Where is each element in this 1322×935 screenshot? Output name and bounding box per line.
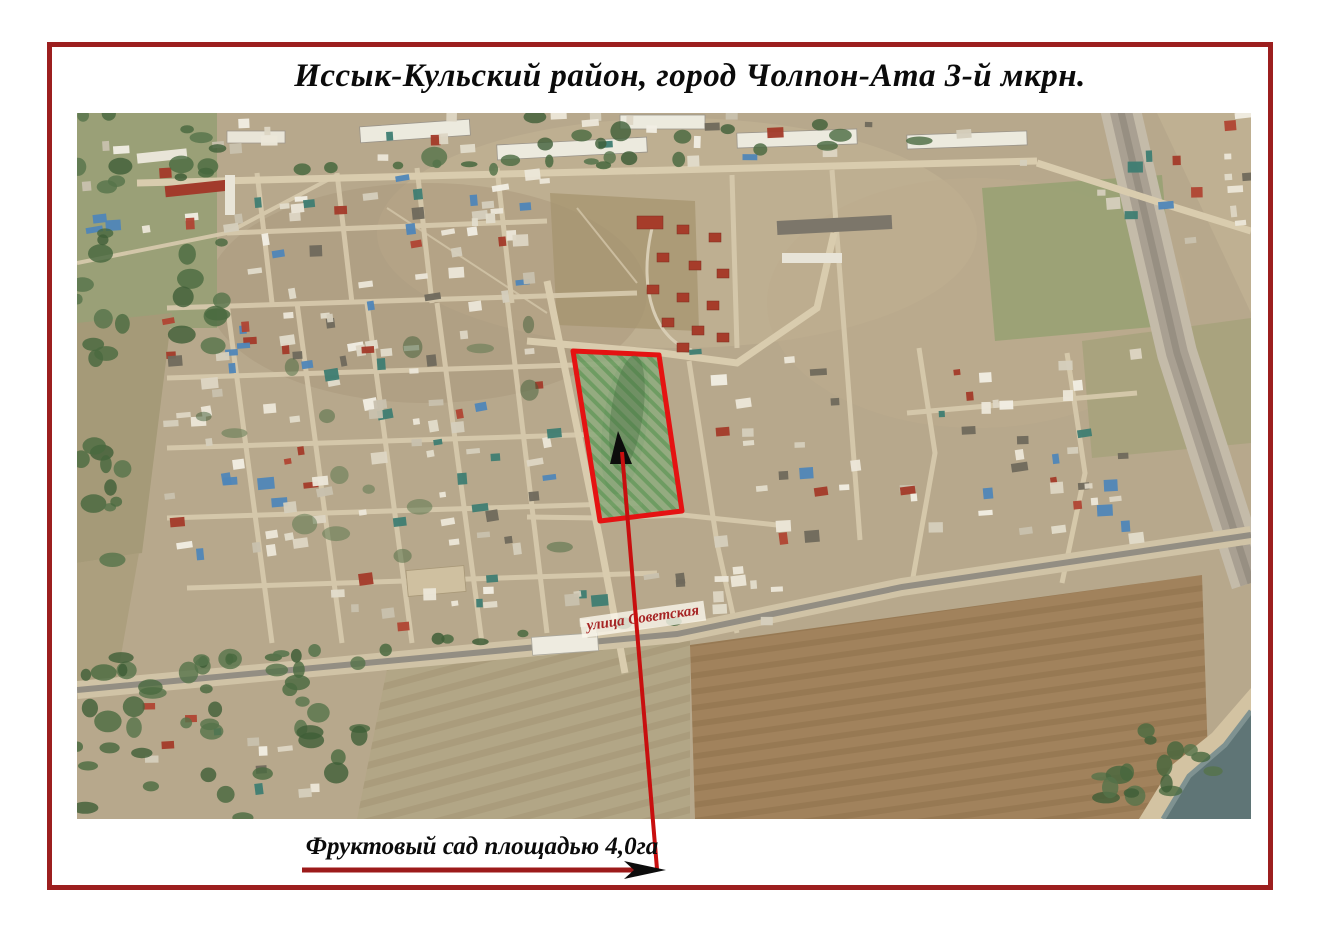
- satellite-image: [77, 113, 1251, 819]
- satellite-map: [77, 113, 1251, 819]
- plot-caption: Фруктовый сад площадью 4,0га: [302, 833, 662, 861]
- map-title: Иссык-Кульский район, город Чолпон-Ата 3…: [180, 58, 1200, 95]
